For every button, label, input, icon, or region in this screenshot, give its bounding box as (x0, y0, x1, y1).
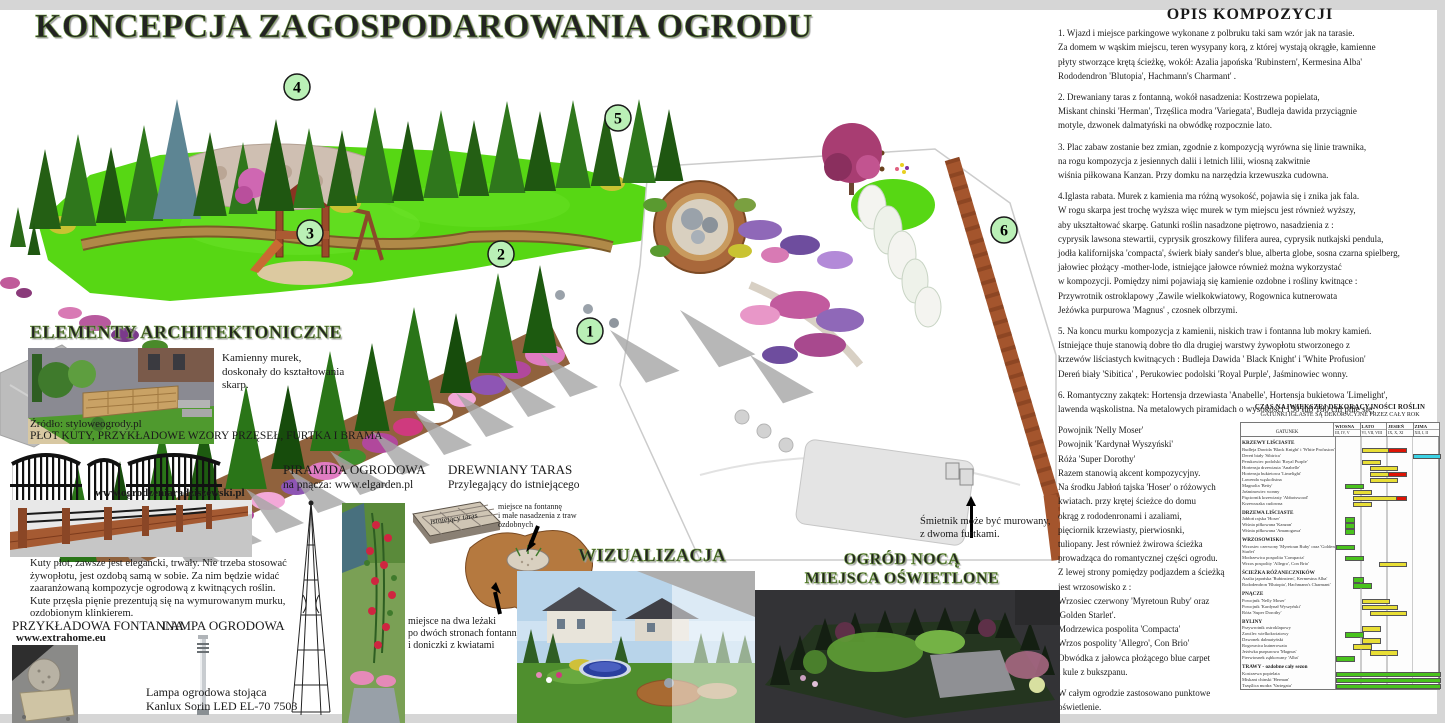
deck-subheading: Przylegający do istniejącego (448, 479, 580, 491)
plant-species-label: Krzewuszka cudowna (1241, 501, 1335, 507)
plant-species-label: Rododendron 'Blutopia', Hachmann's Charm… (1241, 582, 1335, 588)
night-garden-render (755, 590, 1060, 723)
plant-category-row: DRZEWA LIŚCIASTE (1241, 507, 1439, 517)
deck-label-loungers: miejsce na dwa leżaki po dwóch stronach … (408, 616, 522, 652)
plant-category-row: BYLINY (1241, 616, 1439, 626)
opis-paragraph-5: 5. Na koncu murku kompozycja z kamienii,… (1058, 324, 1442, 381)
plant-category-row: WRZOSOWISKO (1241, 534, 1439, 544)
marker-3: 3 (306, 226, 314, 243)
table-header: GATUNEK WIOSNA III, IV, V LATO VI, VII, … (1241, 423, 1439, 437)
plant-category-row: KRZEWY LIŚCIASTE (1241, 437, 1439, 447)
pyramid-trellis-drawing (287, 500, 335, 720)
plant-species-row: Trzęślica modra 'Variegata' (1241, 683, 1439, 689)
pyramid-heading: PIRAMIDA OGRODOWA (283, 462, 426, 478)
opis-paragraph-4: 4.Iglasta rabata. Murek z kamienia ma ró… (1058, 189, 1442, 317)
concept-board: 1 2 3 4 5 6 KONCEPCJA ZAGOSPODAROWANIA O… (0, 0, 1445, 723)
plant-category-row: TRAWY - ozdobne cały sezon (1241, 661, 1439, 671)
plant-species-label: Pierwiosnek ząbkowany 'Alba' (1241, 655, 1335, 661)
trash-bin-note: Śmietnik może być murowany, z dwoma furt… (920, 516, 1060, 541)
decorative-period-bars (1335, 683, 1439, 689)
opis-paragraph-6-list: Powojnik 'Nelly Moser' Powojnik 'Kardyna… (1058, 423, 1240, 679)
decorative-period-bars (1335, 588, 1439, 598)
marker-2: 2 (497, 247, 505, 264)
plant-species-label: Wrzos pospolity 'Allegro', Con Brio' (1241, 561, 1335, 567)
season-header-autumn: JESIEŃ IX, X, XI (1386, 423, 1412, 436)
decorative-period-bars (1335, 534, 1439, 544)
fountain-website: www.extrahome.eu (16, 632, 106, 646)
deck-label-fountain: miejsce na fontannę i małe nasadzenia z … (498, 502, 598, 529)
season-header-winter: ZIMA XII, I, II (1413, 423, 1439, 436)
page-title: KONCEPCJA ZAGOSPODAROWANIA OGRODU (35, 8, 813, 46)
night-garden-heading-line1: OGRÓD NOCĄ (844, 551, 961, 569)
plant-species-label: Wiśnia piłkowana 'Amanogawa' (1241, 528, 1335, 534)
marker-6: 6 (1000, 223, 1008, 240)
season-header-spring: WIOSNA III, IV, V (1333, 423, 1359, 436)
table-body: KRZEWY LIŚCIASTEBudleja Dawida 'Black Kn… (1241, 437, 1439, 689)
decorative-period-bar (1336, 545, 1355, 551)
opis-paragraph-1: 1. Wjazd i miejsce parkingowe wykonane z… (1058, 26, 1442, 83)
visualization-heading: WIZUALIZACJA (578, 545, 726, 566)
plant-species-row: Wrzosiec czerwony 'Myretoun Ruby' oraz '… (1241, 544, 1439, 555)
opis-paragraph-7: W całym ogrodzie zastosowano punktowe oś… (1058, 686, 1240, 714)
opis-paragraph-2: 2. Drewaniany taras z fontanną, wokół na… (1058, 90, 1442, 133)
fence-3d-render (10, 500, 252, 557)
climbing-rose-photo (342, 503, 405, 723)
plant-species-label: Wrzosiec czerwony 'Myretoun Ruby' oraz '… (1241, 544, 1335, 555)
decorative-period-bars (1335, 544, 1439, 555)
decorative-period-bars (1335, 437, 1439, 447)
lamp-caption: Lampa ogrodowa stojąca Kanlux Sorin LED … (146, 686, 297, 713)
marker-4: 4 (293, 80, 301, 97)
visualization-render (517, 571, 755, 723)
marker-1: 1 (586, 324, 594, 341)
decorative-period-bars (1335, 616, 1439, 626)
opis-heading: OPIS KOMPOZYCJI (1058, 8, 1442, 22)
decorative-period-bar (1336, 684, 1441, 690)
plant-category-row: PNĄCZE (1241, 588, 1439, 598)
season-header-summer: LATO VI, VII, VIII (1360, 423, 1386, 436)
stone-fountain-photo (12, 645, 78, 723)
opis-paragraph-3: 3. Plac zabaw zostanie bez zmian, zgodni… (1058, 140, 1442, 183)
table-title: CZAS NAJWIĘKSZEJ DEKORACYJNOŚCI ROŚLIN (1240, 404, 1440, 412)
fence-website: www.ogrodzeniaradziszewski.pl (95, 487, 245, 501)
decorative-period-bars (1335, 661, 1439, 671)
plant-category-row: ŚCIEŻKA RÓŻANECZNIKÓW (1241, 567, 1439, 577)
pyramid-website: na pnącza: www.elgarden.pl (283, 479, 413, 491)
marker-5: 5 (614, 111, 622, 128)
table-subtitle: GATUNKI IGLASTE SĄ DEKORACYJNE PRZEZ CAŁ… (1240, 412, 1440, 419)
decorative-period-bars (1335, 507, 1439, 517)
lamp-heading: LAMPA OGRODOWA (162, 618, 285, 634)
deck-heading: DREWNIANY TARAS (448, 462, 572, 478)
species-column-header: GATUNEK (1241, 423, 1333, 436)
plant-species-label: Róża 'Super Dorothy' (1241, 610, 1335, 616)
stone-wall-caption: Kamienny murek, doskonały do kształtowan… (222, 352, 372, 393)
decorative-period-bars (1335, 567, 1439, 577)
plant-species-label: Trzęślica modra 'Variegata' (1241, 683, 1335, 689)
plant-decorative-period-table: CZAS NAJWIĘKSZEJ DEKORACYJNOŚCI ROŚLIN G… (1240, 404, 1440, 690)
architectural-elements-heading: ELEMENTY ARCHITEKTONICZNE (30, 322, 342, 343)
night-garden-heading-line2: MIEJSCA OŚWIETLONE (805, 570, 999, 588)
fence-heading: PŁOT KUTY, PRZYKŁADOWE WZORY PRZĘSEŁ, FU… (30, 430, 383, 442)
